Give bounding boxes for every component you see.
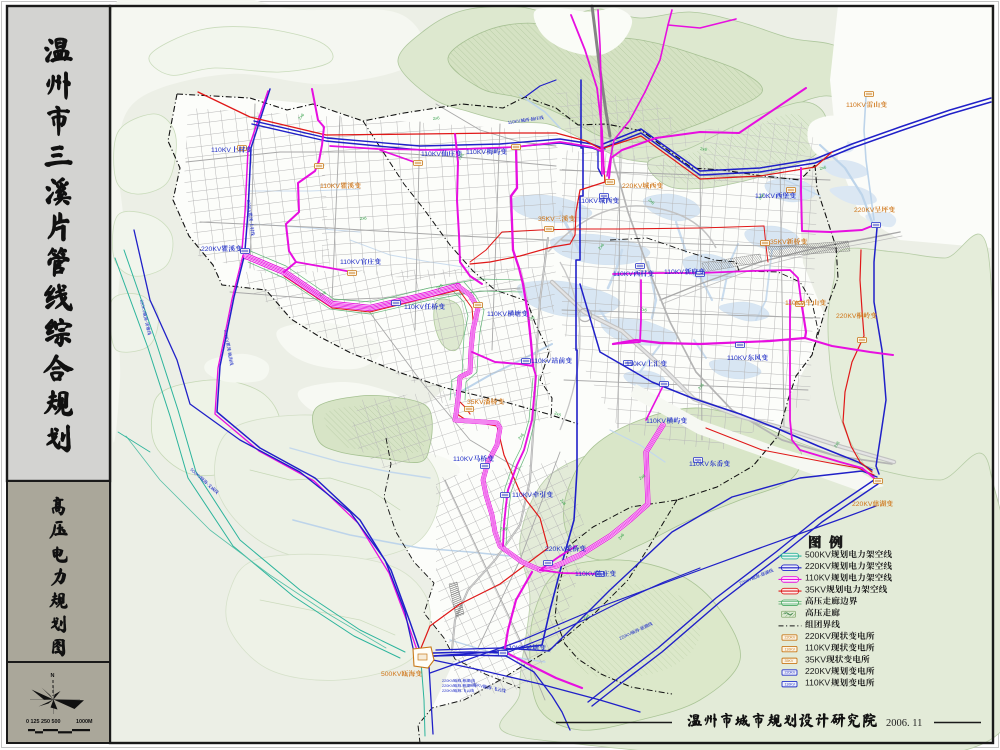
svg-text:110KV: 110KV <box>487 311 507 318</box>
svg-text:35KV: 35KV <box>770 239 787 246</box>
svg-text:110KV: 110KV <box>211 147 231 154</box>
svg-text:110KV: 110KV <box>805 678 830 688</box>
svg-text:220KV: 220KV <box>442 684 454 688</box>
svg-text:35KV: 35KV <box>805 584 826 594</box>
svg-text:110KV: 110KV <box>340 259 360 266</box>
svg-text:110KV: 110KV <box>505 645 525 652</box>
svg-text:220KV: 220KV <box>785 671 796 675</box>
svg-text:I: I <box>470 679 471 683</box>
svg-text:500KV: 500KV <box>381 671 402 678</box>
svg-text:35KV: 35KV <box>805 654 826 664</box>
svg-text:220KV: 220KV <box>805 561 831 571</box>
svg-text:110KV: 110KV <box>846 102 866 109</box>
svg-text:110KV: 110KV <box>785 300 805 307</box>
svg-text:110KV: 110KV <box>646 418 666 425</box>
svg-text:220KV: 220KV <box>805 666 831 676</box>
svg-text:110KV: 110KV <box>727 355 747 362</box>
svg-text:2x6: 2x6 <box>360 215 368 221</box>
svg-text:110KV: 110KV <box>805 643 830 653</box>
svg-text:110KV: 110KV <box>453 456 473 463</box>
svg-text:220KV: 220KV <box>852 501 873 508</box>
svg-text:2x6: 2x6 <box>433 115 441 121</box>
svg-text:220KV: 220KV <box>201 246 222 253</box>
svg-text:220KV: 220KV <box>785 636 796 640</box>
svg-text:110KV: 110KV <box>626 361 646 368</box>
svg-text:220KV: 220KV <box>545 546 566 553</box>
svg-text:110KV: 110KV <box>421 151 441 158</box>
svg-text:2006. 11: 2006. 11 <box>886 718 922 729</box>
svg-text:220KV: 220KV <box>805 631 831 641</box>
svg-text:110KV: 110KV <box>531 358 551 365</box>
svg-text:110KV: 110KV <box>575 571 595 578</box>
svg-text:220KV: 220KV <box>854 207 875 214</box>
svg-text:2x6: 2x6 <box>500 526 508 532</box>
svg-text:110KV: 110KV <box>785 647 796 651</box>
svg-text:II: II <box>470 684 472 688</box>
svg-text:220KV: 220KV <box>622 183 643 190</box>
svg-text:220KV: 220KV <box>442 679 454 683</box>
svg-text:110KV: 110KV <box>805 573 830 583</box>
svg-text:220KV: 220KV <box>836 313 857 320</box>
svg-text:110KV: 110KV <box>664 269 684 276</box>
svg-text:110KV: 110KV <box>689 461 709 468</box>
svg-text:110KV: 110KV <box>613 271 633 278</box>
svg-text:110KV: 110KV <box>404 304 424 311</box>
svg-text:110KV: 110KV <box>785 682 796 686</box>
svg-text:110KV: 110KV <box>466 149 486 156</box>
svg-text:35KV: 35KV <box>538 216 555 223</box>
svg-text:35KV: 35KV <box>785 659 794 663</box>
svg-text:110KV: 110KV <box>512 492 532 499</box>
svg-text:500KV: 500KV <box>805 549 831 559</box>
svg-text:35KV: 35KV <box>467 399 484 406</box>
svg-text:220KV: 220KV <box>442 689 454 693</box>
svg-text:110KV: 110KV <box>320 183 340 190</box>
svg-text:N: N <box>51 673 55 679</box>
svg-text:1000M: 1000M <box>76 719 93 725</box>
svg-text:110KV: 110KV <box>578 198 598 205</box>
svg-text:0 125 250 500: 0 125 250 500 <box>26 719 60 725</box>
